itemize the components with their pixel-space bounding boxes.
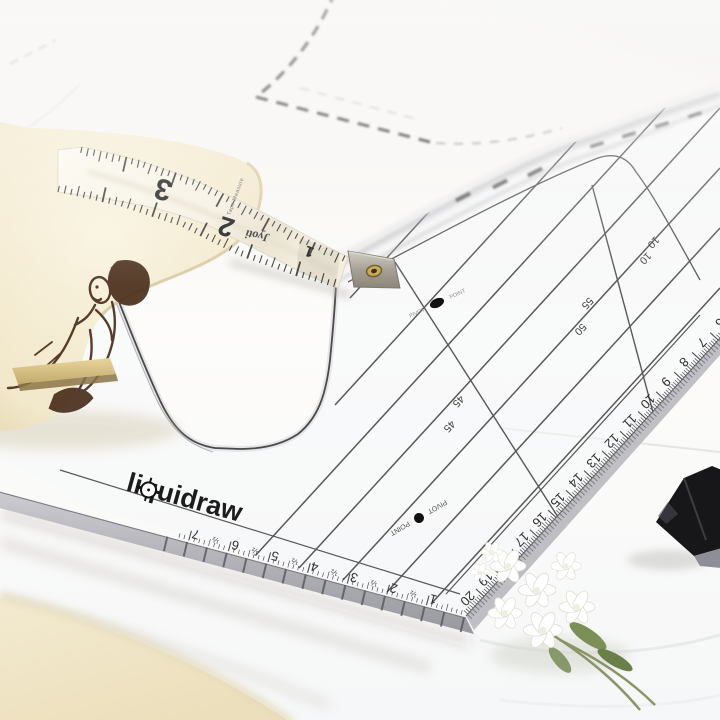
flower-center: [490, 550, 494, 554]
flower-center: [574, 604, 580, 610]
flower-center: [478, 570, 481, 573]
scene-svg: 678910111213141516171819207654321½½½½½½ …: [0, 0, 720, 720]
flower-center: [505, 563, 511, 569]
flower-center: [540, 627, 547, 634]
flower-center: [534, 587, 540, 593]
flower-center: [563, 563, 568, 568]
dof-overlay: [0, 0, 720, 290]
flower-center: [502, 610, 508, 616]
product-photo: 678910111213141516171819207654321½½½½½½ …: [0, 0, 720, 720]
